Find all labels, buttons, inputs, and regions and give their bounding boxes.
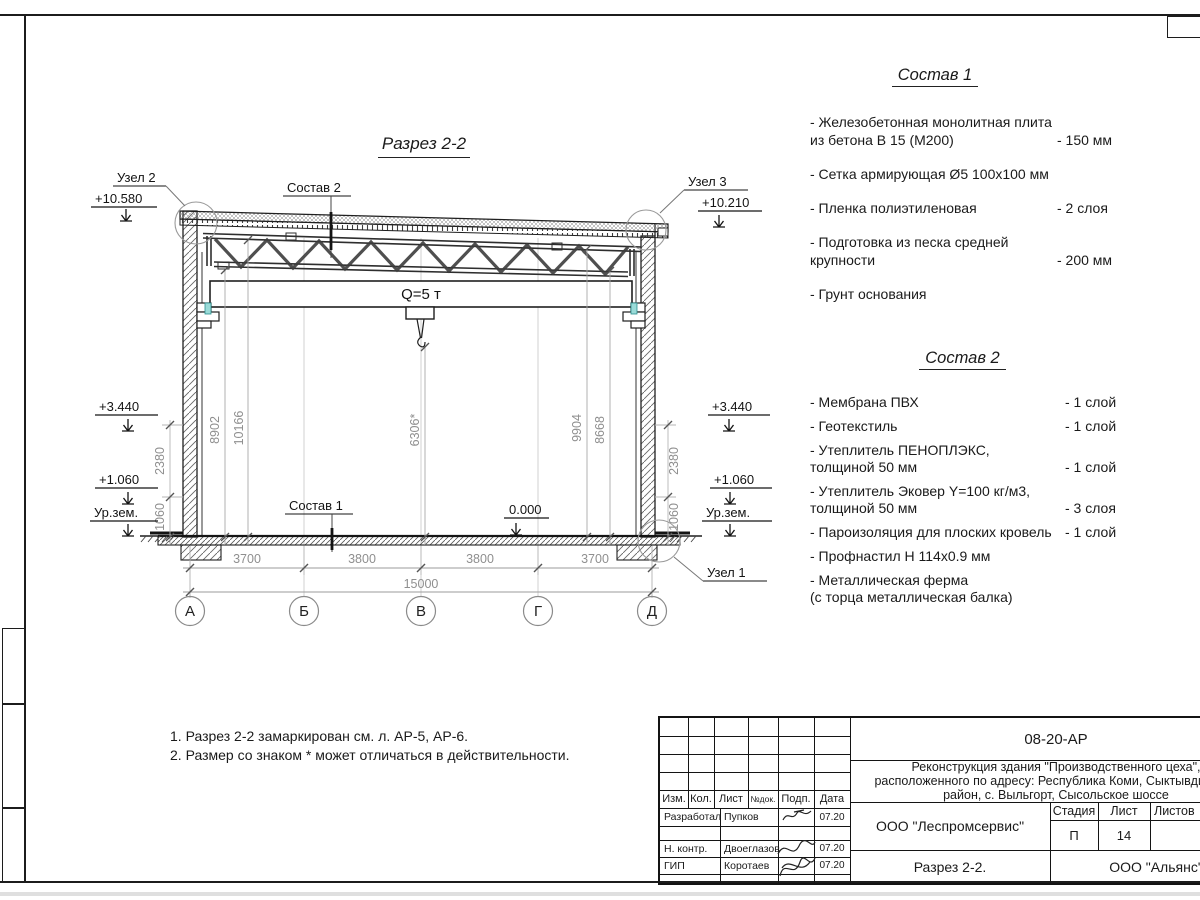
- tb-sheets-total: [1150, 820, 1200, 850]
- crane-capacity-label: Q=5 т: [401, 286, 441, 303]
- tb-header-list: Лист: [714, 790, 748, 808]
- elev-left-344: +3.440: [99, 399, 139, 414]
- signature-developer: [780, 806, 814, 826]
- roof-truss: [203, 233, 641, 277]
- tb-sheet-title: Разрез 2-2.: [850, 850, 1050, 883]
- tb-org1: ООО "Леспромсервис": [850, 802, 1050, 850]
- drawing-title-text: Разрез 2-2: [378, 134, 470, 158]
- title-block: Изм. Кол. Лист №док. Подп. Дата Разработ…: [658, 716, 1200, 885]
- sostav1-item: - Сетка армирующая Ø5 100x100 мм: [810, 165, 1130, 183]
- tb-listov-header: Листов: [1150, 802, 1200, 820]
- dim-3700-2: 3700: [581, 552, 609, 566]
- sostav2-item: - Утеплитель ПЕНОПЛЭКС, толщиной 50 мм- …: [810, 442, 1140, 476]
- dim-8902: 8902: [208, 416, 222, 444]
- elev-left-top: +10.580: [95, 191, 142, 206]
- sostav2-item: - Пароизоляция для плоских кровель- 1 сл…: [810, 524, 1140, 541]
- node-3-label: Узел 3: [688, 174, 727, 189]
- elev-right-344: +3.440: [712, 399, 752, 414]
- sostav2-item: - Мембрана ПВХ- 1 слой: [810, 394, 1140, 411]
- tb-role-ncontrol: Н. контр.: [660, 840, 724, 857]
- signature-ncontrol-gip: [774, 836, 818, 882]
- dim-left-1060: 1060: [153, 503, 167, 531]
- dim-right-2380: 2380: [667, 447, 681, 475]
- note-1: 1. Разрез 2-2 замаркирован см. л. АР-5, …: [170, 727, 569, 746]
- drawing-title: Разрез 2-2: [370, 134, 478, 158]
- dim-3700-1: 3700: [233, 552, 261, 566]
- roof: [180, 211, 668, 238]
- axis-d: Д: [647, 603, 657, 620]
- axis-g: Г: [534, 603, 542, 620]
- tb-date-gip: 07.20: [814, 857, 850, 874]
- callout-sostav1: Состав 1: [289, 498, 343, 513]
- sostav1-title: Состав 1: [810, 66, 1060, 87]
- tb-name-ncontrol: Двоеглазов: [720, 840, 782, 857]
- tb-org2: ООО "Альянс": [1050, 850, 1200, 883]
- bottom-dimensions: 3700 3800 3800 3700 15000: [183, 546, 659, 598]
- tb-header-izm: Изм.: [660, 790, 688, 808]
- sostav1-item: - Пленка полиэтиленовая- 2 слоя: [810, 199, 1130, 217]
- elev-right-ground: Ур.зем.: [706, 505, 750, 520]
- axis-v: В: [416, 603, 426, 620]
- tb-sheet-number: 14: [1098, 820, 1150, 850]
- tb-name-developer: Пупков: [720, 808, 782, 826]
- node-2-label: Узел 2: [117, 170, 156, 185]
- dim-15000: 15000: [404, 577, 439, 591]
- dim-10166: 10166: [232, 411, 246, 446]
- sostav2-item: - Металлическая ферма (с торца металличе…: [810, 572, 1140, 606]
- tb-list-header: Лист: [1098, 802, 1150, 820]
- tb-header-ndok: №док.: [748, 790, 778, 808]
- dim-9904: 9904: [570, 414, 584, 442]
- sostav1-item: - Подготовка из песка средней крупности-…: [810, 233, 1130, 269]
- notes: 1. Разрез 2-2 замаркирован см. л. АР-5, …: [170, 727, 569, 765]
- sostav2-item: - Геотекстиль- 1 слой: [810, 418, 1140, 435]
- sostav2-item: - Утеплитель Эковер Y=100 кг/м3, толщино…: [810, 483, 1140, 517]
- tb-date-developer: 07.20: [814, 808, 850, 826]
- walls: [183, 211, 655, 537]
- sostav1-item: - Грунт основания: [810, 285, 1130, 303]
- tb-project-name: Реконструкция здания "Производственного …: [850, 760, 1200, 802]
- axis-b: Б: [299, 603, 309, 620]
- sostav2-panel: Состав 2 - Мембрана ПВХ- 1 слой - Геотек…: [810, 350, 1140, 606]
- note-2: 2. Размер со знаком * может отличаться в…: [170, 746, 569, 765]
- elev-left-ground: Ур.зем.: [94, 505, 138, 520]
- sostav2-item: - Профнастил Н 114x0.9 мм: [810, 548, 1140, 565]
- tb-doc-code: 08-20-АР: [850, 718, 1200, 760]
- sostav1-item: - Железобетонная монолитная плита из бет…: [810, 113, 1130, 149]
- tb-role-gip: ГИП: [660, 857, 724, 874]
- elev-right-106: +1.060: [714, 472, 754, 487]
- elev-zero: 0.000: [509, 502, 542, 517]
- dim-left-2380: 2380: [153, 447, 167, 475]
- dim-6306: 6306*: [408, 414, 422, 447]
- tb-stage-value: П: [1050, 820, 1098, 850]
- tb-header-data: Дата: [814, 790, 850, 808]
- tb-name-gip: Коротаев: [720, 857, 782, 874]
- elev-left-106: +1.060: [99, 472, 139, 487]
- sostav1-panel: Состав 1 - Железобетонная монолитная пли…: [810, 66, 1130, 303]
- tb-header-kol: Кол.: [688, 790, 714, 808]
- dim-3800-2: 3800: [466, 552, 494, 566]
- tb-stage-header: Стадия: [1050, 802, 1098, 820]
- sostav2-title: Состав 2: [810, 350, 1115, 370]
- tb-role-developer: Разработал: [660, 808, 724, 826]
- dim-3800-1: 3800: [348, 552, 376, 566]
- callout-sostav2: Состав 2: [287, 180, 341, 195]
- axis-a: А: [185, 603, 195, 620]
- elev-right-top: +10.210: [702, 195, 749, 210]
- axis-bubbles: А Б В Г Д: [176, 597, 667, 626]
- tb-date-ncontrol: 07.20: [814, 840, 850, 857]
- dim-8668: 8668: [593, 416, 607, 444]
- node-1-label: Узел 1: [707, 565, 746, 580]
